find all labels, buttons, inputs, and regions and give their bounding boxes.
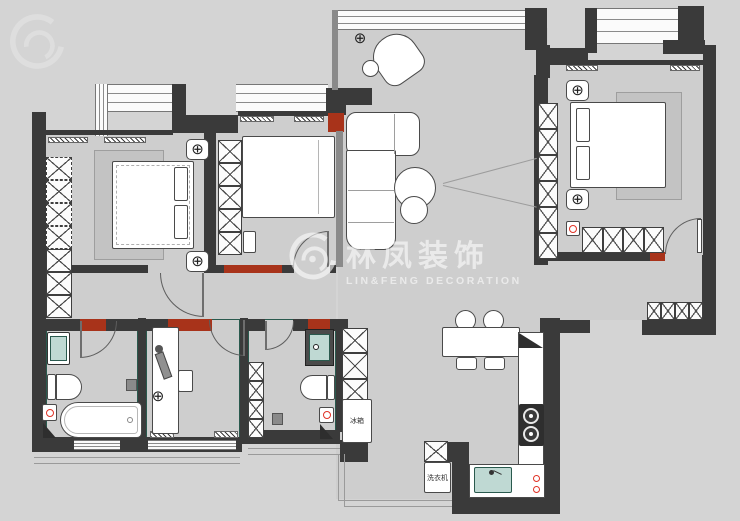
shower-hose-icon	[155, 345, 163, 353]
curtain-symbol	[214, 431, 238, 438]
nightstand: ⊕	[566, 80, 589, 101]
outlet-icon	[533, 475, 540, 482]
wall-left-outer	[32, 112, 46, 452]
door-leaf	[265, 321, 267, 350]
lamp-crosshair-icon: ⊕	[190, 254, 206, 270]
wall-kitchen-bottom	[452, 498, 560, 514]
watermark-ghost-swirl-icon	[0, 0, 70, 90]
building-edge-line	[338, 454, 339, 500]
building-edge-line	[344, 506, 452, 507]
watermark-logo-swirl-icon	[280, 229, 342, 289]
cabinet-cell	[538, 233, 558, 259]
building-edge-line	[34, 463, 240, 464]
laundry-table	[178, 370, 193, 392]
dining-chair	[456, 357, 477, 370]
building-edge-line	[34, 457, 240, 458]
watermark-brand-cn: 林凤装饰	[346, 231, 522, 275]
toilet-bowl	[300, 375, 327, 400]
shoe-cabinet	[647, 302, 703, 320]
cabinet-cell	[248, 362, 264, 381]
toilet-bowl	[56, 374, 82, 400]
cabinet-cell	[46, 249, 72, 272]
building-edge-line	[248, 454, 340, 455]
wall-hallway-bottom-1	[46, 319, 80, 331]
cabinet-bathroom-2-left	[248, 362, 264, 438]
desk	[243, 231, 256, 253]
cabinet-cell	[46, 272, 72, 295]
wall-kitchen-top-stub	[560, 320, 590, 333]
bed-middle-fold	[318, 140, 319, 214]
dining-chair	[484, 357, 505, 370]
bay-window-return	[95, 84, 108, 136]
bathtub-drain	[127, 417, 133, 423]
pillow	[174, 167, 188, 201]
curtain-symbol	[566, 65, 598, 71]
curtain-symbol	[294, 116, 324, 122]
wall-bedroom-right-bottom	[548, 252, 650, 261]
side-table	[362, 60, 379, 77]
curtain-symbol	[104, 137, 146, 143]
wall-top-right-h	[663, 40, 705, 54]
floor-plan: ⊕ ⊕ ⊕ ⊕ ⊕ ⊕ 冰箱 洗衣机	[0, 0, 740, 521]
cabinet-cell	[248, 419, 264, 438]
cabinet-cell	[248, 381, 264, 400]
curtain-symbol	[670, 65, 700, 71]
wall-bedroom-middle-bottom-a	[216, 265, 224, 273]
threshold-bedroom-right	[650, 252, 665, 261]
sink-drain	[313, 344, 319, 350]
cabinet-cell	[689, 302, 703, 320]
cabinet-cell	[582, 227, 603, 253]
cabinet-cell	[46, 203, 72, 226]
pillow	[576, 108, 590, 142]
outlet-icon	[533, 486, 540, 493]
bed-middle	[242, 136, 335, 218]
door-leaf	[202, 273, 204, 317]
cabinet-above-washer	[424, 441, 448, 462]
burner-dot	[529, 432, 533, 436]
wall-bay-post-left	[585, 8, 597, 53]
cabinet-cell	[424, 441, 448, 462]
wall-stub-living	[326, 88, 372, 105]
wardrobe-bedroom-left-lower	[46, 249, 72, 318]
cabinet-cell	[538, 155, 558, 181]
cabinet-cell	[46, 180, 72, 203]
door-leaf	[80, 321, 82, 358]
ceiling-light-icon: ⊕	[352, 30, 368, 46]
lamp-crosshair-icon: ⊕	[570, 83, 586, 99]
wall-hallway-bottom-3	[245, 319, 265, 331]
cabinet-cell	[342, 328, 368, 353]
toilet-tank	[327, 375, 335, 400]
door-leaf	[243, 320, 245, 356]
cabinet-cell	[538, 181, 558, 207]
floor-drain-icon	[323, 411, 331, 419]
watermark: 林凤装饰 LIN&FENG DECORATION	[280, 226, 520, 292]
wall-fixture	[126, 379, 137, 391]
wall-fixture	[272, 413, 283, 425]
bay-window-bedroom-right	[597, 8, 679, 44]
nightstand: ⊕	[186, 139, 209, 160]
cabinet-cell	[623, 227, 644, 253]
washing-machine: 洗衣机	[424, 462, 451, 493]
window-laundry	[148, 440, 236, 450]
cabinet-bathroom-2-right	[342, 328, 368, 404]
cabinet-cell	[538, 129, 558, 155]
nightstand: ⊕	[566, 189, 589, 210]
sofa-seam	[394, 114, 395, 154]
cabinet-cell	[248, 400, 264, 419]
threshold-bedroom-middle	[224, 265, 282, 273]
window-bathroom-1	[74, 440, 120, 450]
floor-drain-crosshair-icon: ⊕	[150, 388, 166, 404]
lamp-crosshair-icon: ⊕	[570, 192, 586, 208]
threshold-post-b	[328, 113, 344, 132]
bay-window-living	[337, 10, 527, 30]
cabinet-cell	[46, 157, 72, 180]
watermark-brand-en: LIN&FENG DECORATION	[346, 275, 522, 287]
wall-living-top-left	[332, 10, 338, 90]
cabinet-cell	[603, 227, 624, 253]
cabinet-cell	[218, 232, 242, 255]
wall-right-outer	[703, 45, 716, 257]
building-edge-line	[338, 500, 452, 501]
cabinet-cell	[644, 227, 665, 253]
sofa-seam	[348, 222, 394, 223]
bay-window-bedroom-middle	[236, 84, 328, 112]
lamp-crosshair-icon: ⊕	[190, 142, 206, 158]
cabinet-cell	[538, 207, 558, 233]
wall-jog	[185, 115, 238, 133]
floor-drain-icon	[46, 409, 54, 417]
cabinet-cell	[647, 302, 661, 320]
toilet-tank	[47, 374, 56, 400]
laundry-counter	[152, 327, 179, 434]
nightstand: ⊕	[186, 251, 209, 272]
sink-basin	[50, 336, 67, 361]
wall-living-right-post	[525, 8, 547, 50]
pillow	[576, 146, 590, 180]
cabinet-cell	[538, 103, 558, 129]
cabinet-cell	[342, 353, 368, 378]
wardrobe-bedroom-middle	[218, 140, 242, 255]
cabinet-cell	[218, 163, 242, 186]
pillow	[174, 205, 188, 239]
cabinet-cell	[661, 302, 675, 320]
wardrobe-bedroom-right	[582, 227, 664, 253]
wall-washer-top	[445, 442, 469, 462]
wall-bedroom-left-topline	[46, 130, 173, 135]
cabinet-cell	[675, 302, 689, 320]
cabinet-cell	[218, 209, 242, 232]
cabinet-cell	[46, 226, 72, 249]
building-edge-line	[344, 454, 345, 506]
door-leaf-bedroom-right	[697, 219, 702, 253]
coffee-table-small	[400, 196, 428, 224]
curtain-symbol	[240, 116, 274, 122]
curtain-symbol	[48, 137, 88, 143]
dining-table	[442, 327, 520, 357]
fridge: 冰箱	[342, 399, 372, 443]
wall-hallway-right-bottom	[642, 320, 716, 335]
building-edge-line	[248, 448, 340, 449]
cabinet-cell	[218, 186, 242, 209]
sofa-seam	[348, 190, 394, 191]
cabinet-cell	[218, 140, 242, 163]
burner-dot	[529, 414, 533, 418]
wall-post-a	[172, 84, 186, 133]
floor-drain-icon	[569, 225, 577, 233]
cabinet-cell	[46, 295, 72, 318]
tv-wall-cabinet	[538, 103, 558, 259]
wardrobe-bedroom-left-upper	[46, 157, 72, 249]
